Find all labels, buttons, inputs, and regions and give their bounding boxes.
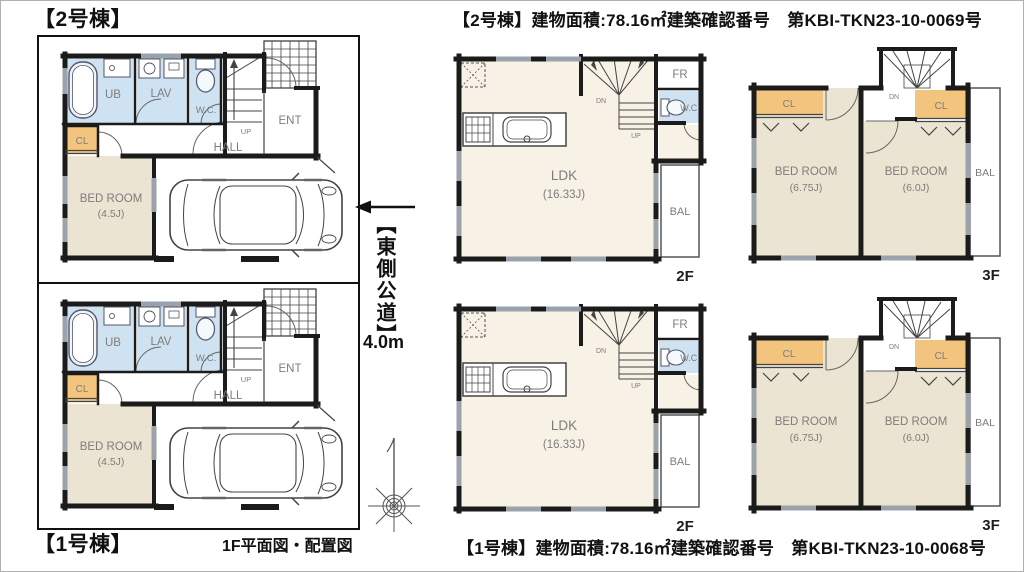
plan-2f-unit2: [456, 56, 704, 285]
floorplan-page: 【2号棟】 【1号棟】 1F平面図・配置図 【2号棟】建物面積:78.16㎡建築…: [0, 0, 1024, 572]
compass-icon: [368, 438, 420, 532]
plan-1f-unit1: [63, 289, 342, 510]
floorplan-canvas: UB LAV W.C. CL ENT HALL UP BED ROOM (4.5…: [1, 1, 1024, 572]
plan-2f-unit1: [456, 306, 704, 535]
plan-3f-unit1: [751, 299, 1000, 534]
road-arrow-icon: [355, 201, 415, 214]
plan-3f-unit2: [751, 49, 1000, 284]
plan-1f-unit2: [63, 41, 342, 262]
